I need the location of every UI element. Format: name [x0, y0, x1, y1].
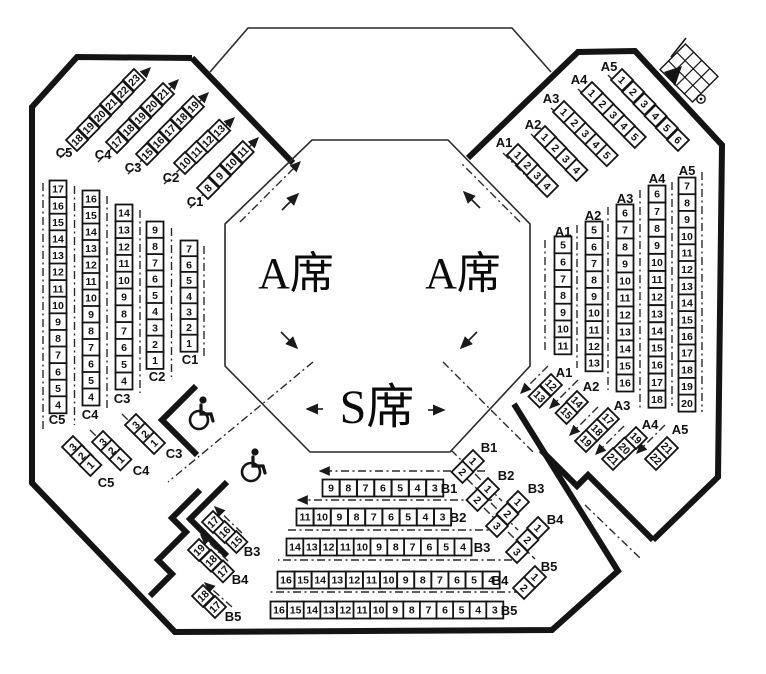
seat-number: 16: [273, 605, 285, 617]
seat-number: 10: [681, 231, 693, 243]
seat-number: 5: [405, 512, 411, 524]
seat-number: 17: [681, 348, 693, 360]
seat-number: 5: [591, 225, 597, 237]
seat-number: 10: [557, 324, 569, 336]
section-label-a3t: A3: [543, 91, 560, 106]
seat-number: 9: [392, 605, 398, 617]
seat-number: 4: [475, 605, 481, 617]
seating-chart: A席 A席 S席 181920212223C51718192021C415161…: [0, 0, 766, 674]
seat-number: 9: [328, 483, 334, 495]
seat-number: 2: [152, 339, 158, 351]
seat-number: 5: [55, 383, 61, 395]
seat-number: 8: [420, 575, 426, 587]
section-label-b2r: B2: [450, 510, 467, 525]
seat-number: 14: [289, 542, 301, 554]
seat-number: 8: [121, 309, 127, 321]
direction-arrow-up-right: [282, 194, 298, 210]
direction-arrow-down-left: [461, 332, 477, 348]
seat-number: 13: [651, 308, 663, 320]
seat-number: 15: [619, 361, 631, 373]
seat-number: 13: [323, 605, 335, 617]
seat-number: 15: [52, 217, 64, 229]
seat-group-b4-b4dr: 123B4: [506, 512, 564, 563]
seat-number: 12: [619, 310, 631, 322]
seat-number: 3: [492, 605, 498, 617]
section-label-c1c: C1: [182, 352, 199, 367]
seat-number: 7: [363, 483, 369, 495]
seat-number: 17: [651, 377, 663, 389]
seat-number: 11: [619, 293, 630, 305]
seat-number: 10: [356, 542, 368, 554]
seat-number: 7: [371, 512, 377, 524]
seat-number: 3: [440, 512, 446, 524]
seat-group-a5-a5c: 7891011121314151617181920A5: [679, 163, 696, 412]
seat-number: 9: [55, 317, 61, 329]
seat-number: 11: [118, 258, 129, 270]
seat-number: 11: [85, 276, 96, 288]
section-label-c3t: C3: [125, 160, 142, 175]
seat-number: 4: [186, 291, 192, 303]
seat-number: 4: [88, 392, 94, 404]
seat-number: 11: [557, 341, 568, 353]
seat-number: 5: [443, 542, 449, 554]
section-label-a4c: A4: [649, 171, 666, 186]
seat-group-a3-a3c: 678910111213141516A3: [617, 191, 634, 392]
seat-number: 8: [55, 333, 61, 345]
seat-number: 13: [85, 243, 97, 255]
seat-group-b3-b3r: 1413121110987654B3: [287, 539, 491, 556]
seat-number: 16: [651, 360, 663, 372]
seat-number: 6: [186, 259, 192, 271]
seat-number: 13: [619, 327, 631, 339]
seat-number: 4: [415, 483, 421, 495]
section-label-a3b: A3: [614, 398, 631, 413]
seat-number: 8: [622, 242, 628, 254]
seat-number: 14: [619, 344, 631, 356]
seat-number: 2: [186, 322, 192, 334]
seat-number: 12: [651, 291, 663, 303]
section-label-b3dl: B3: [244, 544, 261, 559]
seat-group-a4-a4c: 6789101112131415161718A4: [649, 171, 667, 408]
seat-number: 14: [52, 234, 64, 246]
seat-number: 5: [152, 290, 158, 302]
section-label-b1r: B1: [441, 481, 458, 496]
seat-number: 15: [85, 210, 97, 222]
seat-number: 11: [340, 542, 351, 554]
seat-number: 9: [622, 259, 628, 271]
seat-number: 8: [354, 512, 360, 524]
section-label-b4r: B4: [492, 573, 509, 588]
seat-group-c2-c2c: 987654321C2: [147, 222, 166, 385]
seat-number: 14: [314, 575, 326, 587]
section-label-c5b: C5: [98, 475, 115, 490]
seat-group-c5-c5c: 1716151413121110987654C5: [49, 181, 67, 428]
stairs-icon: [660, 38, 718, 103]
seat-number: 13: [331, 575, 343, 587]
section-label-a5t: A5: [601, 59, 618, 74]
seat-group-b1-b1r: 9876543B1: [323, 480, 458, 497]
seat-number: 10: [316, 512, 328, 524]
seat-number: 10: [85, 293, 97, 305]
seat-number: 6: [560, 257, 566, 269]
section-label-a2t: A2: [525, 117, 542, 132]
seat-number: 7: [152, 257, 158, 269]
seat-number: 7: [684, 181, 690, 193]
seat-number: 3: [186, 307, 192, 319]
seat-number: 6: [152, 274, 158, 286]
seat-number: 16: [280, 575, 292, 587]
seat-group-b4-b4r: 16151413121110987654B4: [278, 572, 510, 589]
section-label-b2dr: B2: [498, 468, 515, 483]
seat-number: 12: [588, 341, 600, 353]
direction-arrow-up-left: [464, 192, 480, 208]
seat-number: 11: [356, 605, 367, 617]
seat-number: 6: [380, 483, 386, 495]
section-label-b4dl: B4: [232, 572, 249, 587]
aisle-lines-corners: [168, 162, 640, 558]
seat-number: 14: [118, 208, 130, 220]
seat-group-a1-a1c: 567891011A1: [555, 224, 572, 354]
section-label-b1dr: B1: [481, 440, 498, 455]
seat-number: 6: [88, 359, 94, 371]
seat-group-a2-a2c: 5678910111213A2: [585, 208, 603, 371]
seat-group-b5-b5dl: 1817B5: [192, 585, 241, 624]
seat-number: 18: [651, 394, 663, 406]
b-wing-step-wall: [150, 490, 200, 596]
seat-number: 12: [85, 260, 97, 272]
seat-number: 9: [336, 512, 342, 524]
seat-number: 10: [588, 308, 600, 320]
seat-number: 7: [410, 542, 416, 554]
seat-number: 8: [560, 290, 566, 302]
seat-number: 6: [442, 605, 448, 617]
seat-number: 5: [186, 275, 192, 287]
seat-number: 15: [681, 314, 693, 326]
seat-number: 8: [345, 483, 351, 495]
section-label-a1t: A1: [496, 135, 513, 150]
seat-number: 10: [651, 257, 663, 269]
seat-number: 12: [681, 264, 693, 276]
section-label-b3r: B3: [474, 540, 491, 555]
seat-number: 18: [681, 364, 693, 376]
seat-number: 8: [88, 326, 94, 338]
seat-number: 19: [681, 381, 693, 393]
seat-number: 6: [426, 542, 432, 554]
section-label-c2t: C2: [163, 170, 180, 185]
seat-group-c3-c3b: 321C3: [125, 414, 182, 461]
seat-number: 10: [118, 275, 130, 287]
seat-number: 9: [152, 225, 158, 237]
section-label-a2b: A2: [583, 379, 600, 394]
seat-number: 7: [121, 325, 127, 337]
seat-number: 7: [55, 350, 61, 362]
seat-number: 10: [52, 300, 64, 312]
seat-number: 14: [651, 326, 663, 338]
seat-number: 10: [373, 605, 385, 617]
seat-number: 15: [290, 605, 302, 617]
seat-number: 11: [366, 575, 377, 587]
seat-group-c4-c4c: 16151413121110987654C4: [82, 191, 100, 423]
section-label-c2c: C2: [149, 369, 166, 384]
seat-group-c3-c3c: 1413121110987654C3: [114, 205, 133, 407]
seat-number: 7: [654, 206, 660, 218]
seat-number: 6: [454, 575, 460, 587]
seat-number: 8: [409, 605, 415, 617]
seat-number: 14: [681, 298, 693, 310]
seat-number: 12: [52, 267, 64, 279]
section-label-b3dr: B3: [528, 481, 545, 496]
seat-number: 6: [55, 366, 61, 378]
seat-number: 5: [397, 483, 403, 495]
seat-number: 20: [681, 398, 693, 410]
seat-number: 16: [52, 200, 64, 212]
seat-number: 9: [403, 575, 409, 587]
seat-number: 7: [437, 575, 443, 587]
section-label-a3c: A3: [617, 191, 634, 206]
seat-number: 7: [425, 605, 431, 617]
section-label-b5dr: B5: [541, 559, 558, 574]
section-label-c3b: C3: [166, 446, 183, 461]
plaza-direction-arrows: [281, 192, 480, 410]
seat-number: 16: [619, 378, 631, 390]
seat-number: 4: [152, 306, 158, 318]
seat-number: 9: [591, 291, 597, 303]
seat-number: 14: [306, 605, 318, 617]
seat-number: 3: [152, 323, 158, 335]
seat-number: 8: [684, 197, 690, 209]
seat-number: 12: [323, 542, 335, 554]
a-seat-label-left: A席: [258, 249, 334, 298]
seat-number: 16: [85, 194, 97, 206]
section-label-a4b: A4: [642, 417, 659, 432]
seat-number: 5: [121, 359, 127, 371]
seat-number: 6: [121, 342, 127, 354]
seat-number: 14: [85, 227, 97, 239]
seat-number: 12: [349, 575, 361, 587]
seat-number: 7: [186, 244, 192, 256]
seat-number: 5: [471, 575, 477, 587]
seat-number: 12: [118, 241, 130, 253]
seat-number: 9: [376, 542, 382, 554]
section-label-c4b: C4: [133, 463, 150, 478]
section-label-c4c: C4: [82, 407, 99, 422]
seat-number: 6: [591, 241, 597, 253]
seat-number: 12: [340, 605, 352, 617]
seat-number: 11: [651, 274, 662, 286]
wheelchair-bay-wall-1: [162, 386, 197, 455]
stage-back-area: [210, 28, 551, 72]
seat-number: 9: [654, 240, 660, 252]
seat-number: 8: [591, 275, 597, 287]
seat-number: 8: [152, 241, 158, 253]
seat-number: 1: [186, 338, 192, 350]
seat-number: 7: [591, 258, 597, 270]
section-label-a1c: A1: [555, 224, 572, 239]
section-label-b4dr: B4: [547, 512, 564, 527]
seat-number: 11: [52, 283, 63, 295]
s-seat-label: S席: [340, 381, 415, 434]
seat-number: 4: [121, 376, 127, 388]
wheelchair-icon: [242, 448, 265, 481]
seat-number: 5: [459, 605, 465, 617]
seat-number: 6: [388, 512, 394, 524]
seat-number: 5: [88, 375, 94, 387]
seat-number: 1: [152, 355, 158, 367]
seat-number: 4: [422, 512, 428, 524]
section-label-c4t: C4: [95, 147, 112, 162]
seat-number: 8: [654, 223, 660, 235]
seat-number: 13: [52, 250, 64, 262]
seat-group-b5-b5r: 161514131211109876543B5: [271, 602, 518, 619]
seat-number: 9: [684, 214, 690, 226]
section-label-c5c: C5: [49, 412, 66, 427]
section-label-a5c: A5: [679, 163, 696, 178]
seat-number: 8: [393, 542, 399, 554]
seat-group-b2-b2r: 11109876543B2: [297, 509, 467, 526]
seat-number: 13: [306, 542, 318, 554]
seat-number: 10: [383, 575, 395, 587]
section-label-c1t: C1: [187, 194, 204, 209]
section-label-c5t: C5: [56, 145, 73, 160]
seat-number: 13: [118, 225, 130, 237]
seat-group-b5-b5dr: 12B5: [513, 559, 557, 599]
seat-number: 11: [588, 324, 599, 336]
seat-number: 3: [432, 483, 438, 495]
seat-number: 11: [681, 248, 692, 260]
seat-number: 7: [560, 273, 566, 285]
seat-number: 9: [88, 309, 94, 321]
seat-number: 7: [622, 225, 628, 237]
seat-group-c1-c1c: 7654321C1: [181, 241, 199, 368]
seat-number: 13: [588, 358, 600, 370]
seat-group-b1-b1dr: 12B1: [452, 440, 498, 483]
seat-number: 4: [55, 400, 61, 412]
seat-number: 7: [88, 342, 94, 354]
seat-number: 15: [297, 575, 309, 587]
seat-number: 6: [622, 208, 628, 220]
seat-number: 9: [560, 307, 566, 319]
seat-number: 11: [299, 512, 310, 524]
section-label-a5b: A5: [672, 422, 689, 437]
section-label-c3c: C3: [114, 391, 131, 406]
seat-number: 15: [651, 343, 663, 355]
seat-number: 9: [121, 292, 127, 304]
seat-number: 4: [460, 542, 466, 554]
seat-number: 6: [654, 189, 660, 201]
seat-number: 17: [52, 184, 64, 196]
seat-number: 16: [681, 331, 693, 343]
seat-number: 10: [619, 276, 631, 288]
section-label-b5r: B5: [501, 603, 518, 618]
direction-arrow-down-right: [281, 332, 297, 348]
section-label-b5dl: B5: [225, 609, 242, 624]
section-label-a1b: A1: [556, 365, 573, 380]
seat-number: 5: [560, 240, 566, 252]
a-seat-label-right: A席: [425, 249, 501, 298]
section-label-a2c: A2: [585, 208, 602, 223]
seat-number: 13: [681, 281, 693, 293]
section-label-a4t: A4: [571, 72, 588, 87]
wheelchair-icon: [190, 396, 213, 429]
